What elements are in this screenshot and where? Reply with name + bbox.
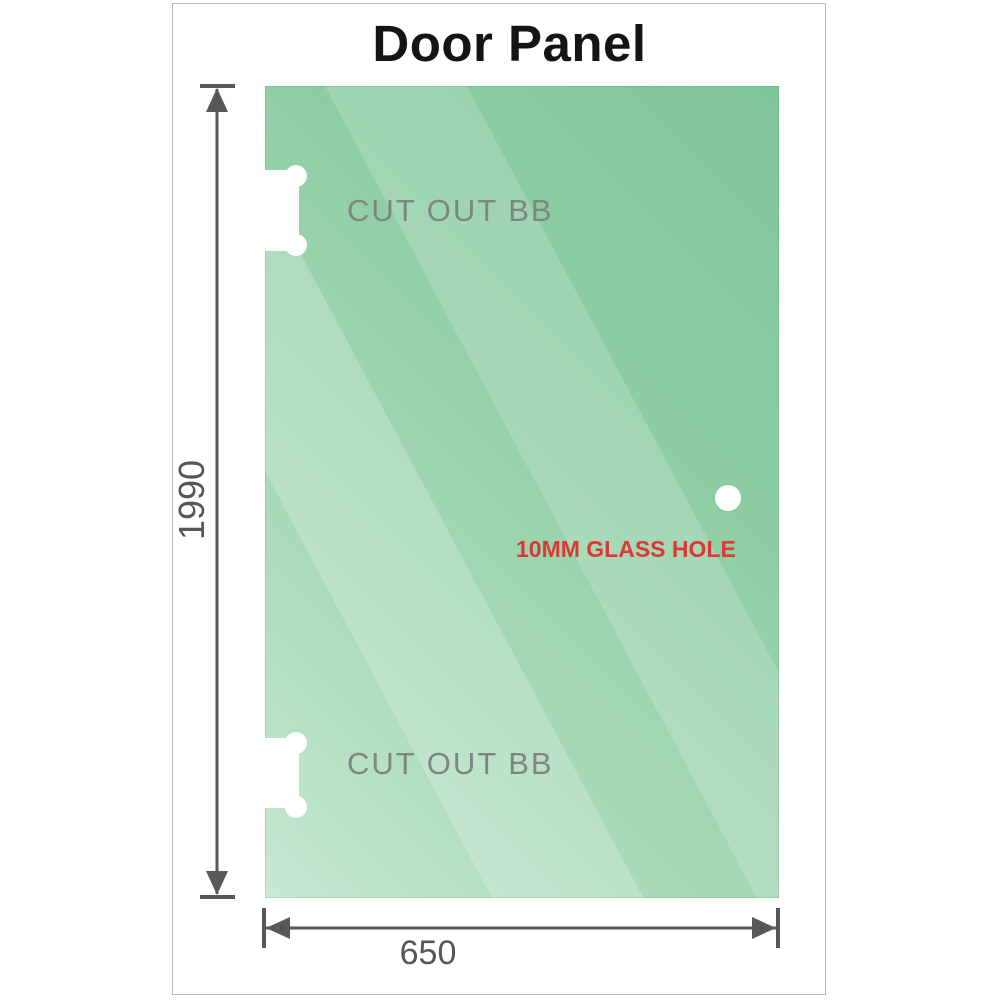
hinge-cutout-top-icon	[252, 158, 314, 264]
height-dimension-label: 1990	[171, 420, 213, 580]
glass-hole-label: 10MM GLASS HOLE	[516, 536, 736, 563]
width-dimension-arrow-icon	[255, 905, 790, 960]
glass-hole-icon	[713, 483, 743, 513]
cutout-label-top: CUT OUT BB	[347, 193, 554, 229]
diagram-title: Door Panel	[182, 14, 837, 73]
hinge-cutout-bottom-icon	[252, 726, 314, 821]
diagram-page: Door Panel CUT OUT BB CUT OUT BB 10MM GL…	[0, 0, 1000, 1000]
width-dimension-label: 650	[363, 934, 493, 973]
cutout-label-bottom: CUT OUT BB	[347, 746, 554, 782]
